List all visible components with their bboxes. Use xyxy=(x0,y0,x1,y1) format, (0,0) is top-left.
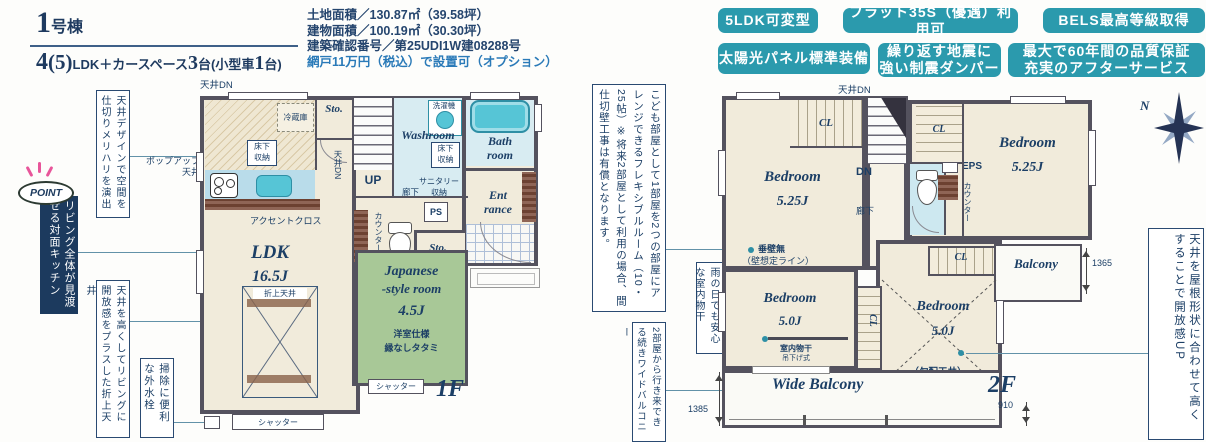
dimension-arrow xyxy=(1026,402,1027,426)
sparkle-icon xyxy=(46,166,54,177)
dimension-arrow xyxy=(719,372,720,426)
building-number-suffix: 号棟 xyxy=(51,19,83,36)
stove-burner xyxy=(214,177,224,187)
badge-damper-line1: 繰り返す地震に xyxy=(887,43,992,60)
stairs-dn-label: DN xyxy=(850,165,878,178)
tatami-note1: 洋室仕様 xyxy=(358,328,465,339)
japanese-room-label2: -style room xyxy=(358,281,465,297)
porch-step-inner xyxy=(477,273,535,285)
fridge-area: 冷蔵庫 xyxy=(277,103,314,132)
floor2-label: 2F xyxy=(988,372,1016,399)
inner-wall xyxy=(962,100,964,240)
callout-dot xyxy=(762,336,768,342)
counter-strip xyxy=(938,175,958,200)
layout-t2: 台(小型車 xyxy=(198,57,254,72)
bathroom-line1: Bath xyxy=(466,134,534,148)
tarekabe-dot xyxy=(748,247,754,253)
badge-damper: 繰り返す地震に 強い制震ダンパー xyxy=(878,43,1001,77)
drying-type-label: 吊下げ式 xyxy=(782,353,810,363)
bedroom-ne-size: 5.25J xyxy=(970,158,1085,178)
shoe-cabinet xyxy=(522,172,536,222)
underfloor-storage-line1: 床下 xyxy=(432,143,459,154)
connector-line xyxy=(966,353,1148,354)
entrance-line2: rance xyxy=(468,202,528,216)
stove-icon xyxy=(210,173,238,198)
dim-1385: 1385 xyxy=(688,404,708,414)
kitchen-sink xyxy=(256,175,292,197)
oriage-label: 折上天井 xyxy=(253,288,307,299)
storage-label: Sto. xyxy=(316,102,352,116)
ceiling-dn-label: 天井DN xyxy=(330,150,344,202)
bathtub xyxy=(470,100,530,133)
balcony-ne xyxy=(994,244,1082,302)
ceiling-beam xyxy=(247,375,311,383)
badge-warranty-line2: 充実のアフターサービス xyxy=(1024,60,1189,77)
dim-1365: 1365 xyxy=(1092,258,1112,268)
ldk-size-label: 16.5J xyxy=(228,266,312,288)
building-area: 建物面積／100.19㎡（30.30坪） xyxy=(307,24,558,40)
badge-solar: 太陽光パネル標準装備 xyxy=(718,43,870,74)
window-marker xyxy=(228,92,308,100)
sparkle-icon xyxy=(38,162,41,173)
compass-icon xyxy=(1152,88,1206,166)
stove-burner xyxy=(214,187,222,195)
japanese-room-size: 4.5J xyxy=(358,301,465,321)
underfloor-storage-line2: 収納 xyxy=(432,154,459,165)
tatami-note2: 縁なしタタミ xyxy=(358,342,465,353)
eps-box xyxy=(942,162,958,173)
stove-burner xyxy=(226,179,235,188)
layout-n3: 1 xyxy=(254,52,264,74)
callout-sloped-open: 天井を屋根形状に合わせて高くすることで開放感UP xyxy=(1148,228,1204,440)
layout-n1: 4 xyxy=(36,49,48,75)
badge-flat35s: フラット35S（優遇）利用可 xyxy=(843,8,1018,33)
stairs-1f xyxy=(354,98,392,170)
entrance-line1: Ent xyxy=(468,188,528,202)
assumed-wall-line xyxy=(726,266,856,268)
underfloor-storage-line1: 床下 xyxy=(248,141,276,152)
closet-label: CL xyxy=(808,116,844,130)
shutter-label: シャッター xyxy=(232,414,324,430)
window-marker xyxy=(1088,130,1096,186)
layout-line: 4(5)LDK＋カースペース3台(小型車1台) xyxy=(36,49,282,76)
window-marker xyxy=(470,92,520,100)
washroom-label: Washroom xyxy=(394,128,462,142)
dimension-arrow xyxy=(1086,248,1087,294)
callout-outdoor-faucet: 掃除に便利な外水栓 xyxy=(140,358,174,438)
underfloor-storage-line2: 収納 xyxy=(248,152,276,163)
drying-bar xyxy=(768,337,848,340)
building-number-num: 1 xyxy=(36,6,51,39)
building-number: 1号棟 xyxy=(36,6,83,40)
washer-drum xyxy=(436,111,454,129)
bedroom-ne-label: Bedroom xyxy=(970,134,1085,152)
header-divider xyxy=(30,45,298,47)
fridge-label: 冷蔵庫 xyxy=(278,104,313,131)
layout-t1: LDK＋カースペース xyxy=(73,57,189,72)
popup-ceiling-line2: 天井 xyxy=(146,167,200,178)
popup-ceiling-line1: ポップアップ xyxy=(146,156,200,167)
accent-cloth-label: アクセントクロス xyxy=(250,214,340,227)
callout-point-kitchen: リビング全体が見渡せる対面キッチン xyxy=(40,196,78,314)
floorplan-flyer: 1号棟 4(5)LDK＋カースペース3台(小型車1台) 土地面積／130.87㎡… xyxy=(0,0,1206,442)
hallway-label: 廊下 xyxy=(856,204,886,217)
bedroom-se-size: 5.0J xyxy=(908,322,978,340)
badge-damper-line2: 強い制震ダンパー xyxy=(880,60,1000,77)
raised-ceiling-box: 折上天井 xyxy=(242,286,318,398)
porch-step xyxy=(470,268,540,288)
railing-post xyxy=(885,415,888,425)
badge-warranty-line1: 最大で60年間の品質保証 xyxy=(1023,43,1191,60)
ceiling-beam xyxy=(247,299,311,307)
window-marker xyxy=(1010,96,1066,104)
layout-t3: 台) xyxy=(264,57,281,72)
balcony-railing xyxy=(729,419,995,420)
bedroom-sw-size: 5.0J xyxy=(750,312,830,330)
badge-bels: BELS最高等級取得 xyxy=(1043,8,1205,33)
land-area: 土地面積／130.87㎡（39.58坪） xyxy=(307,8,558,24)
point-badge: POINT xyxy=(18,181,74,205)
outdoor-faucet-fixture xyxy=(204,416,220,429)
underfloor-storage: 床下 収納 xyxy=(431,142,460,168)
window-marker xyxy=(718,150,726,196)
window-marker xyxy=(996,300,1004,344)
inner-wall xyxy=(462,168,538,171)
bedroom-nw-size: 5.25J xyxy=(735,192,850,212)
stairs-landing-dark xyxy=(868,98,906,138)
callout-raised-ceiling: 天井を高くしてリビングに開放感をプラスした折上天井 xyxy=(96,280,130,438)
popup-ceiling-label: ポップアップ 天井 xyxy=(146,156,200,178)
entrance-label: Ent rance xyxy=(468,188,528,216)
confirmation-number: 建築確認番号／第25UDI1W建08288号 xyxy=(307,39,558,55)
callout-dot xyxy=(958,350,964,356)
ceiling-dn-label: 天井DN xyxy=(838,82,871,96)
callout-ceiling-design: 天井デザインで空間を仕切りメリハリを演出 xyxy=(96,90,130,218)
hallway-label: 廊下 xyxy=(402,186,426,198)
connector-line xyxy=(174,422,204,423)
window-marker xyxy=(736,92,780,100)
stairs-up-label: UP xyxy=(356,172,390,188)
bathroom-label: Bath room xyxy=(466,134,534,162)
compass-north-label: N xyxy=(1140,98,1149,114)
window-marker xyxy=(196,250,204,294)
window-marker xyxy=(196,152,204,182)
bedroom-se-label: Bedroom xyxy=(898,298,988,316)
bedroom-sw-label: Bedroom xyxy=(740,290,840,308)
washer-label: 洗濯機 xyxy=(429,101,459,110)
dim-910: 910 xyxy=(998,400,1013,410)
badge-5ldk: 5LDK可変型 xyxy=(718,8,818,33)
ldk-label: LDK xyxy=(228,240,312,266)
sparkle-icon xyxy=(26,166,34,177)
floor1-label: 1F xyxy=(436,376,464,403)
callout-continuous-balcony: 2部屋から行き来できる続きワイドバルコニー xyxy=(632,322,666,442)
wide-balcony-label: Wide Balcony xyxy=(772,376,863,394)
window-marker xyxy=(534,104,542,132)
japanese-room-label1: Japanese xyxy=(358,264,465,280)
balcony-label: Balcony xyxy=(998,256,1074,272)
stairs-2f xyxy=(868,98,906,164)
callout-flexible-room: こども部屋として1部屋を2つの部屋にアレンジできるフレキシブルルーム（10・25… xyxy=(592,84,666,312)
balcony-door-opening xyxy=(752,366,830,374)
layout-n2: 3 xyxy=(188,52,198,74)
layout-p1: (5) xyxy=(48,50,73,74)
window-marker xyxy=(718,292,726,332)
railing-post xyxy=(803,415,806,425)
underfloor-storage: 床下 収納 xyxy=(247,140,277,166)
bedroom-nw-label: Bedroom xyxy=(735,168,850,186)
screen-option: 網戸11万円（税込）で設置可（オプション） xyxy=(307,55,558,71)
spec-block: 土地面積／130.87㎡（39.58坪） 建物面積／100.19㎡（30.30坪… xyxy=(307,8,558,70)
ceiling-dn-label: 天井DN xyxy=(200,77,233,91)
closet-label: CL xyxy=(922,122,956,136)
ps-shaft: PS xyxy=(424,202,448,222)
bathroom-line2: room xyxy=(466,148,534,162)
shutter-label: シャッター xyxy=(368,379,424,394)
kitchen-bar-counter xyxy=(205,199,320,210)
badge-warranty: 最大で60年間の品質保証 充実のアフターサービス xyxy=(1008,43,1205,77)
